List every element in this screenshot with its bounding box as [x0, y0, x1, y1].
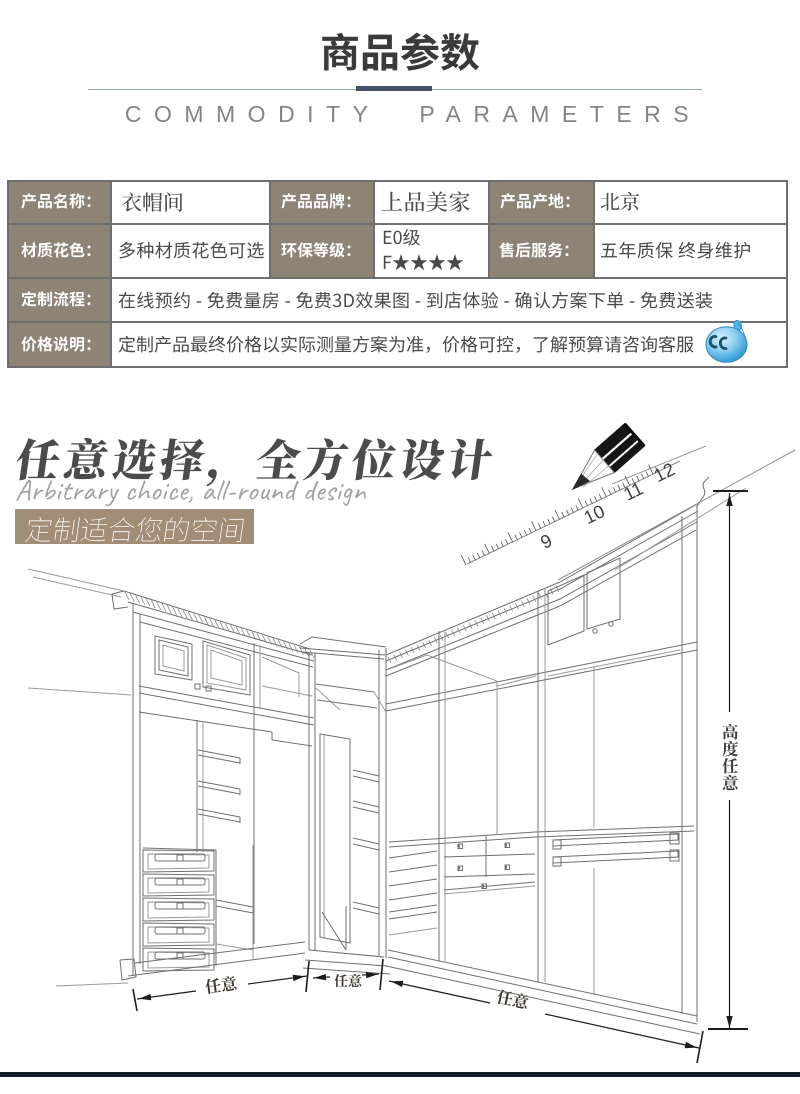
svg-text:12: 12	[650, 458, 678, 486]
svg-text:11: 11	[620, 478, 646, 505]
svg-text:9: 9	[537, 529, 555, 552]
svg-text:10: 10	[580, 500, 608, 528]
